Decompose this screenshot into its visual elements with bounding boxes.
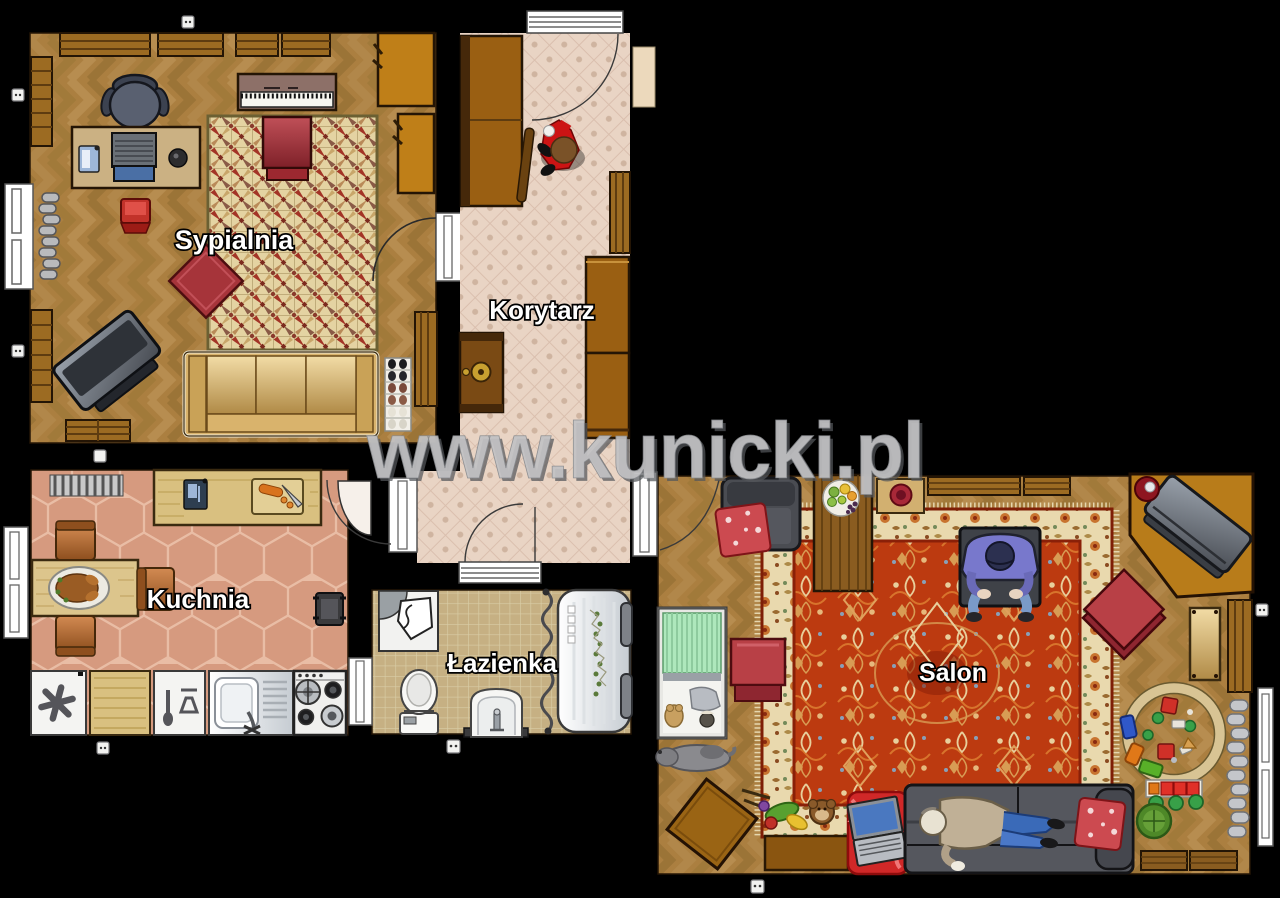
svg-text:Sypialnia: Sypialnia <box>175 225 295 255</box>
svg-text:Salon: Salon <box>919 659 987 687</box>
svg-text:Kuchnia: Kuchnia <box>147 584 250 614</box>
svg-text:Korytarz: Korytarz <box>489 295 594 325</box>
svg-text:www.kunicki.pl: www.kunicki.pl <box>366 406 924 495</box>
svg-text:Łazienka: Łazienka <box>447 648 557 678</box>
